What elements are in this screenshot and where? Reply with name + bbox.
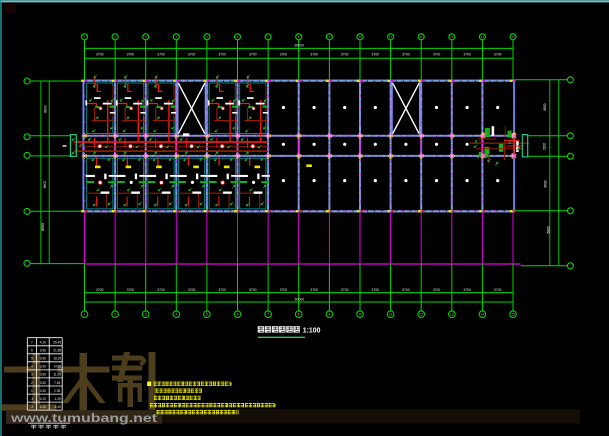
svg-text:2: 2 xyxy=(475,139,478,145)
svg-text:3.60: 3.60 xyxy=(40,373,46,377)
svg-text:60000: 60000 xyxy=(294,43,304,47)
svg-text:3700: 3700 xyxy=(96,288,104,292)
svg-text:2.95: 2.95 xyxy=(54,389,60,393)
svg-text:11: 11 xyxy=(389,313,393,317)
svg-text:11.05: 11.05 xyxy=(53,373,61,377)
svg-text:3700: 3700 xyxy=(157,288,165,292)
svg-text:5: 5 xyxy=(31,357,33,361)
svg-text:7.45: 7.45 xyxy=(54,381,60,385)
svg-text:3.60: 3.60 xyxy=(40,365,46,369)
svg-text:3.60: 3.60 xyxy=(40,357,46,361)
svg-text:3700: 3700 xyxy=(341,288,349,292)
svg-text:2: 2 xyxy=(31,381,33,385)
svg-text:8: 8 xyxy=(298,313,300,317)
svg-text:1: 1 xyxy=(31,389,33,393)
svg-text:3700: 3700 xyxy=(249,53,257,57)
svg-text:18.25: 18.25 xyxy=(53,357,61,361)
svg-text:3700: 3700 xyxy=(494,53,502,57)
svg-text:3700: 3700 xyxy=(372,288,380,292)
svg-text:4.20: 4.20 xyxy=(40,397,46,401)
svg-text:-1.25: -1.25 xyxy=(54,397,61,401)
svg-text:1: 1 xyxy=(84,313,86,317)
svg-text:4.20: 4.20 xyxy=(40,341,46,345)
svg-text:6600: 6600 xyxy=(544,180,548,187)
svg-text:-4.45: -4.45 xyxy=(54,405,61,409)
svg-text:3: 3 xyxy=(145,313,147,317)
svg-text:3.60: 3.60 xyxy=(40,381,46,385)
svg-text:-2: -2 xyxy=(30,405,33,409)
svg-text:6600: 6600 xyxy=(547,226,551,233)
svg-text:13: 13 xyxy=(450,35,454,39)
svg-text:6600: 6600 xyxy=(41,223,45,231)
svg-text:6600: 6600 xyxy=(543,103,547,110)
svg-text:7: 7 xyxy=(31,341,33,345)
svg-text:3700: 3700 xyxy=(96,53,104,57)
svg-text:14: 14 xyxy=(481,35,485,39)
svg-text:3700: 3700 xyxy=(433,53,441,57)
svg-text:4: 4 xyxy=(31,365,33,369)
svg-text:3.60: 3.60 xyxy=(40,349,46,353)
svg-text:13: 13 xyxy=(450,313,454,317)
svg-text:6600: 6600 xyxy=(44,105,48,113)
svg-text:15: 15 xyxy=(511,35,515,39)
svg-text:60000: 60000 xyxy=(295,297,305,301)
svg-text:3: 3 xyxy=(31,373,33,377)
svg-text:3700: 3700 xyxy=(280,53,288,57)
svg-text:10: 10 xyxy=(358,35,362,39)
svg-text:6: 6 xyxy=(31,349,33,353)
svg-text:3700: 3700 xyxy=(341,53,349,57)
svg-text:6600: 6600 xyxy=(43,181,47,189)
svg-text:3700: 3700 xyxy=(310,288,318,292)
svg-text:3700: 3700 xyxy=(372,53,380,57)
svg-text:21.85: 21.85 xyxy=(53,349,61,353)
svg-text:3700: 3700 xyxy=(188,288,196,292)
svg-text:3700: 3700 xyxy=(157,53,165,57)
svg-text:3700: 3700 xyxy=(433,288,441,292)
svg-text:15: 15 xyxy=(511,313,515,317)
svg-text:3700: 3700 xyxy=(402,288,410,292)
svg-text:11: 11 xyxy=(389,35,392,39)
svg-text:2100: 2100 xyxy=(543,143,547,150)
svg-text:3700: 3700 xyxy=(280,288,288,292)
svg-text:14: 14 xyxy=(481,313,485,317)
svg-text:5: 5 xyxy=(206,313,208,317)
svg-text:14.65: 14.65 xyxy=(53,365,61,369)
svg-text:3700: 3700 xyxy=(463,53,471,57)
svg-text:6: 6 xyxy=(237,313,239,317)
svg-text:3700: 3700 xyxy=(218,53,226,57)
svg-text:-1: -1 xyxy=(30,397,33,401)
svg-text:12: 12 xyxy=(420,35,424,39)
svg-text:12: 12 xyxy=(419,313,423,317)
svg-text:3700: 3700 xyxy=(249,288,257,292)
svg-text:4: 4 xyxy=(175,313,177,317)
svg-text:2: 2 xyxy=(114,313,116,317)
svg-text:10: 10 xyxy=(358,313,362,317)
svg-text:3700: 3700 xyxy=(310,53,318,57)
svg-text:4.20: 4.20 xyxy=(40,405,46,409)
svg-text:3700: 3700 xyxy=(188,53,196,57)
svg-text:2: 2 xyxy=(508,140,511,146)
svg-text:1:100: 1:100 xyxy=(303,328,321,335)
svg-text:3700: 3700 xyxy=(127,288,135,292)
svg-text:25.45: 25.45 xyxy=(53,341,61,345)
svg-text:3700: 3700 xyxy=(127,53,135,57)
svg-text:4.50: 4.50 xyxy=(40,389,46,393)
svg-text:9: 9 xyxy=(329,313,331,317)
svg-text:3700: 3700 xyxy=(402,53,410,57)
svg-text:7: 7 xyxy=(267,313,269,317)
svg-text:3700: 3700 xyxy=(494,288,502,292)
svg-text:3700: 3700 xyxy=(218,288,226,292)
svg-text:3700: 3700 xyxy=(463,288,471,292)
